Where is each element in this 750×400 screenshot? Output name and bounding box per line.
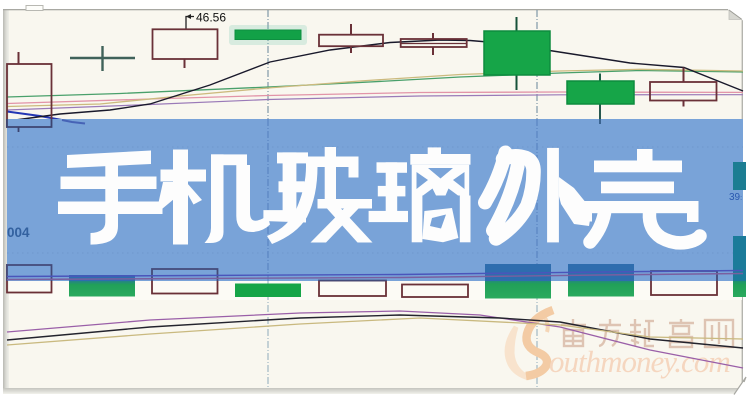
- svg-text:46.56: 46.56: [196, 11, 226, 25]
- svg-text:004: 004: [7, 225, 30, 240]
- svg-text:outhmoney.com: outhmoney.com: [549, 344, 730, 379]
